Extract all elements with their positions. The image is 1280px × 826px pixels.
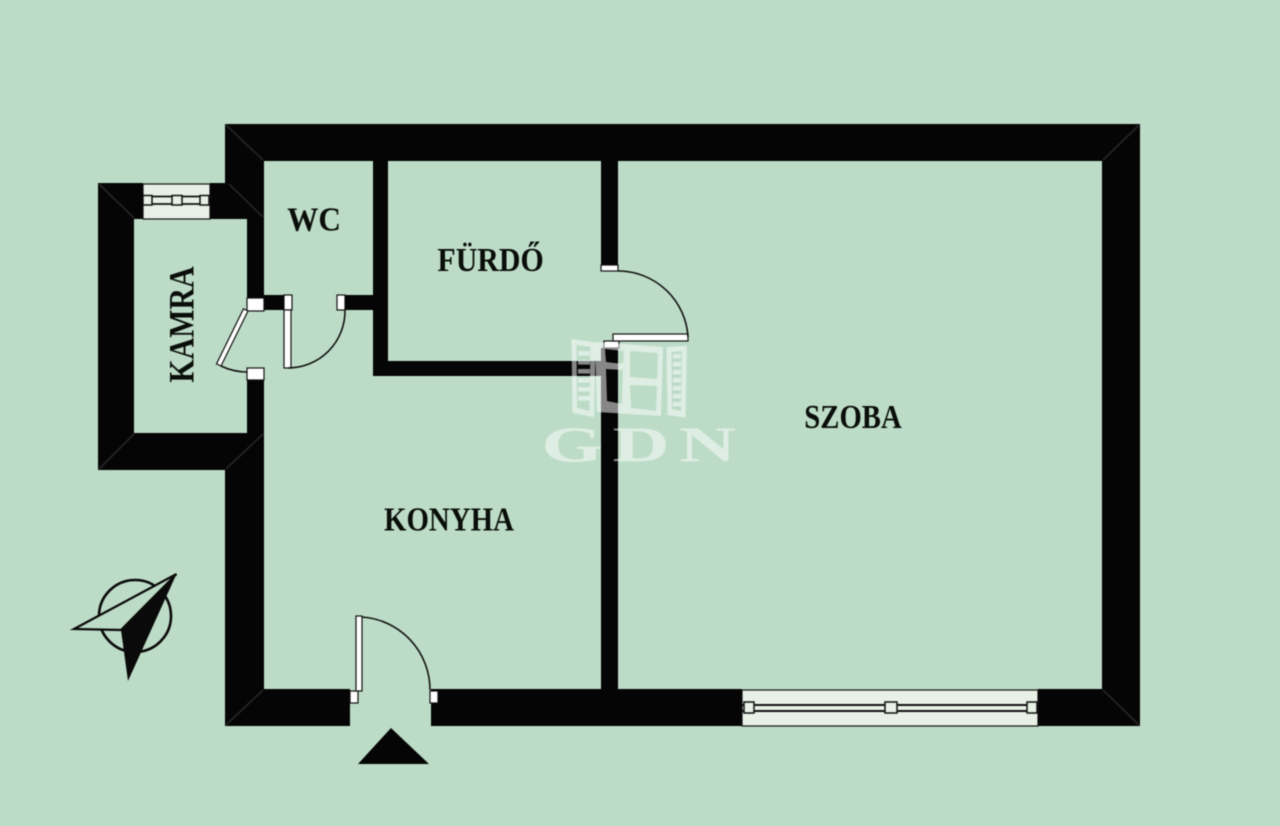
svg-text:FÜRDŐ: FÜRDŐ	[437, 240, 543, 278]
svg-text:GDN: GDN	[542, 417, 746, 472]
svg-text:SZOBA: SZOBA	[804, 398, 902, 436]
svg-text:WC: WC	[287, 201, 341, 238]
svg-text:KAMRA: KAMRA	[163, 266, 202, 382]
svg-text:KONYHA: KONYHA	[384, 500, 514, 538]
